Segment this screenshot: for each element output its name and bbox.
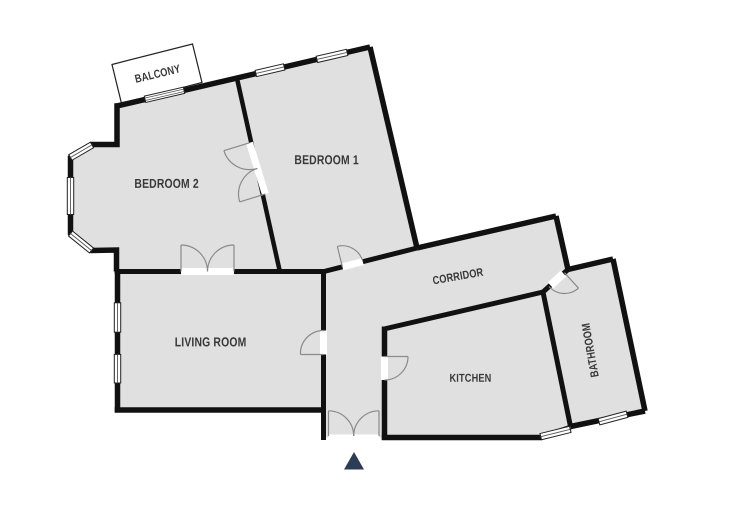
svg-text:KITCHEN: KITCHEN xyxy=(450,373,492,385)
svg-text:BEDROOM 1: BEDROOM 1 xyxy=(294,153,359,167)
svg-text:BEDROOM 2: BEDROOM 2 xyxy=(134,177,199,191)
svg-text:LIVING ROOM: LIVING ROOM xyxy=(175,335,247,349)
